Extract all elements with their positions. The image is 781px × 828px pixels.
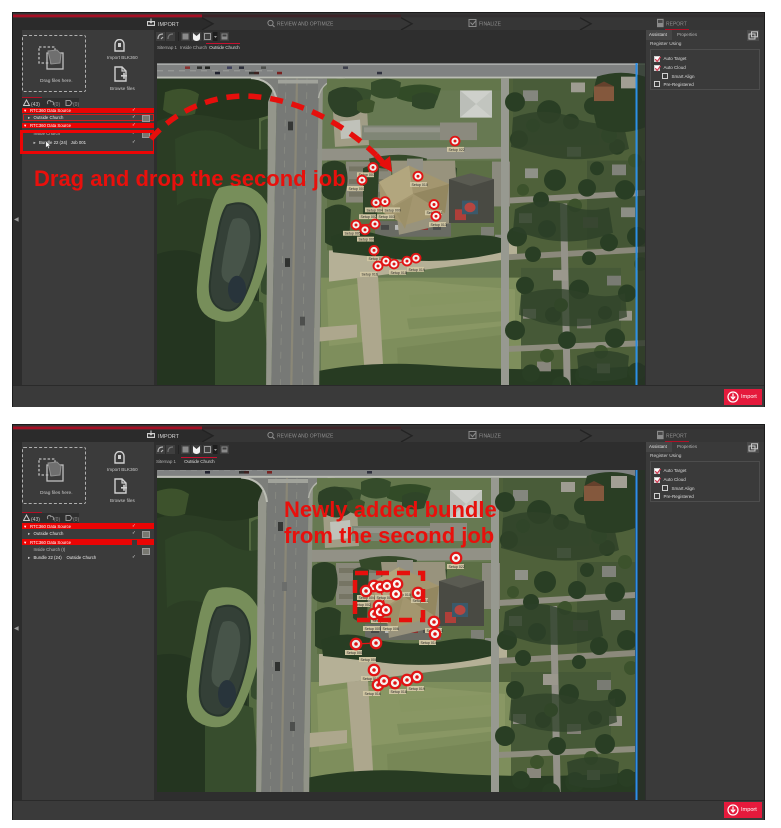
svg-text:IMPORT: IMPORT <box>158 434 180 440</box>
svg-text:FINALIZE: FINALIZE <box>479 434 502 440</box>
svg-text:Setup 018: Setup 018 <box>391 690 407 694</box>
svg-text:(43): (43) <box>31 102 40 107</box>
svg-text:Setup 004: Setup 004 <box>367 208 383 212</box>
svg-text:Setup 006: Setup 006 <box>383 627 399 631</box>
svg-text:Setup 022: Setup 022 <box>449 565 465 569</box>
svg-text:REVIEW AND OPTIMIZE: REVIEW AND OPTIMIZE <box>277 22 334 28</box>
svg-text:Setup 008: Setup 008 <box>361 658 377 662</box>
svg-text:Setup 019: Setup 019 <box>409 268 425 272</box>
svg-text:Setup 019: Setup 019 <box>409 687 425 691</box>
svg-text:Setup 016: Setup 016 <box>365 692 381 696</box>
svg-text:Setup 011: Setup 011 <box>413 599 429 603</box>
svg-text:(0): (0) <box>54 517 60 522</box>
svg-text:(0): (0) <box>73 517 79 522</box>
svg-text:Setup 009: Setup 009 <box>385 208 401 212</box>
svg-text:REPORT: REPORT <box>666 434 687 440</box>
svg-text:Setup 022: Setup 022 <box>449 148 465 152</box>
svg-text:IMPORT: IMPORT <box>158 22 180 28</box>
svg-text:Setup 003: Setup 003 <box>379 215 395 219</box>
svg-text:Setup 002: Setup 002 <box>361 215 377 219</box>
svg-text:(43): (43) <box>31 517 40 522</box>
svg-text:Setup 001: Setup 001 <box>347 651 363 655</box>
svg-text:FINALIZE: FINALIZE <box>479 22 502 28</box>
svg-text:Setup 016: Setup 016 <box>362 273 378 277</box>
svg-text:(0): (0) <box>73 102 79 107</box>
svg-text:(0): (0) <box>54 102 60 107</box>
svg-text:REPORT: REPORT <box>666 22 687 28</box>
svg-text:Setup 018: Setup 018 <box>391 271 407 275</box>
svg-text:Setup 014: Setup 014 <box>421 641 437 645</box>
svg-text:Setup 005: Setup 005 <box>345 232 361 236</box>
svg-text:Setup 005: Setup 005 <box>365 627 381 631</box>
svg-text:Setup 013: Setup 013 <box>431 223 447 227</box>
svg-text:REVIEW AND OPTIMIZE: REVIEW AND OPTIMIZE <box>277 434 334 440</box>
svg-text:Setup 006: Setup 006 <box>359 238 375 242</box>
